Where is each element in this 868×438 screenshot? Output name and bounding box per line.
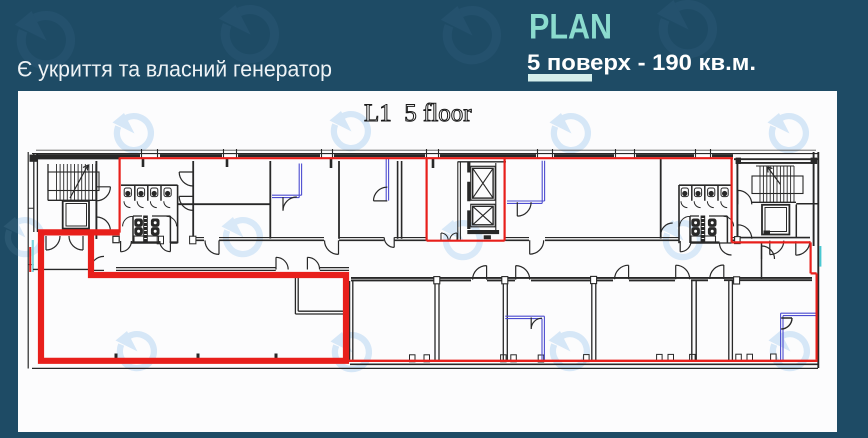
svg-text:PLAN: PLAN (529, 8, 612, 47)
svg-text:5 поверх - 190 кв.м.: 5 поверх - 190 кв.м. (527, 50, 756, 75)
svg-text:Є укриття та власний генератор: Є укриття та власний генератор (17, 57, 332, 82)
svg-text:L1 5 floor: L1 5 floor (364, 100, 472, 127)
